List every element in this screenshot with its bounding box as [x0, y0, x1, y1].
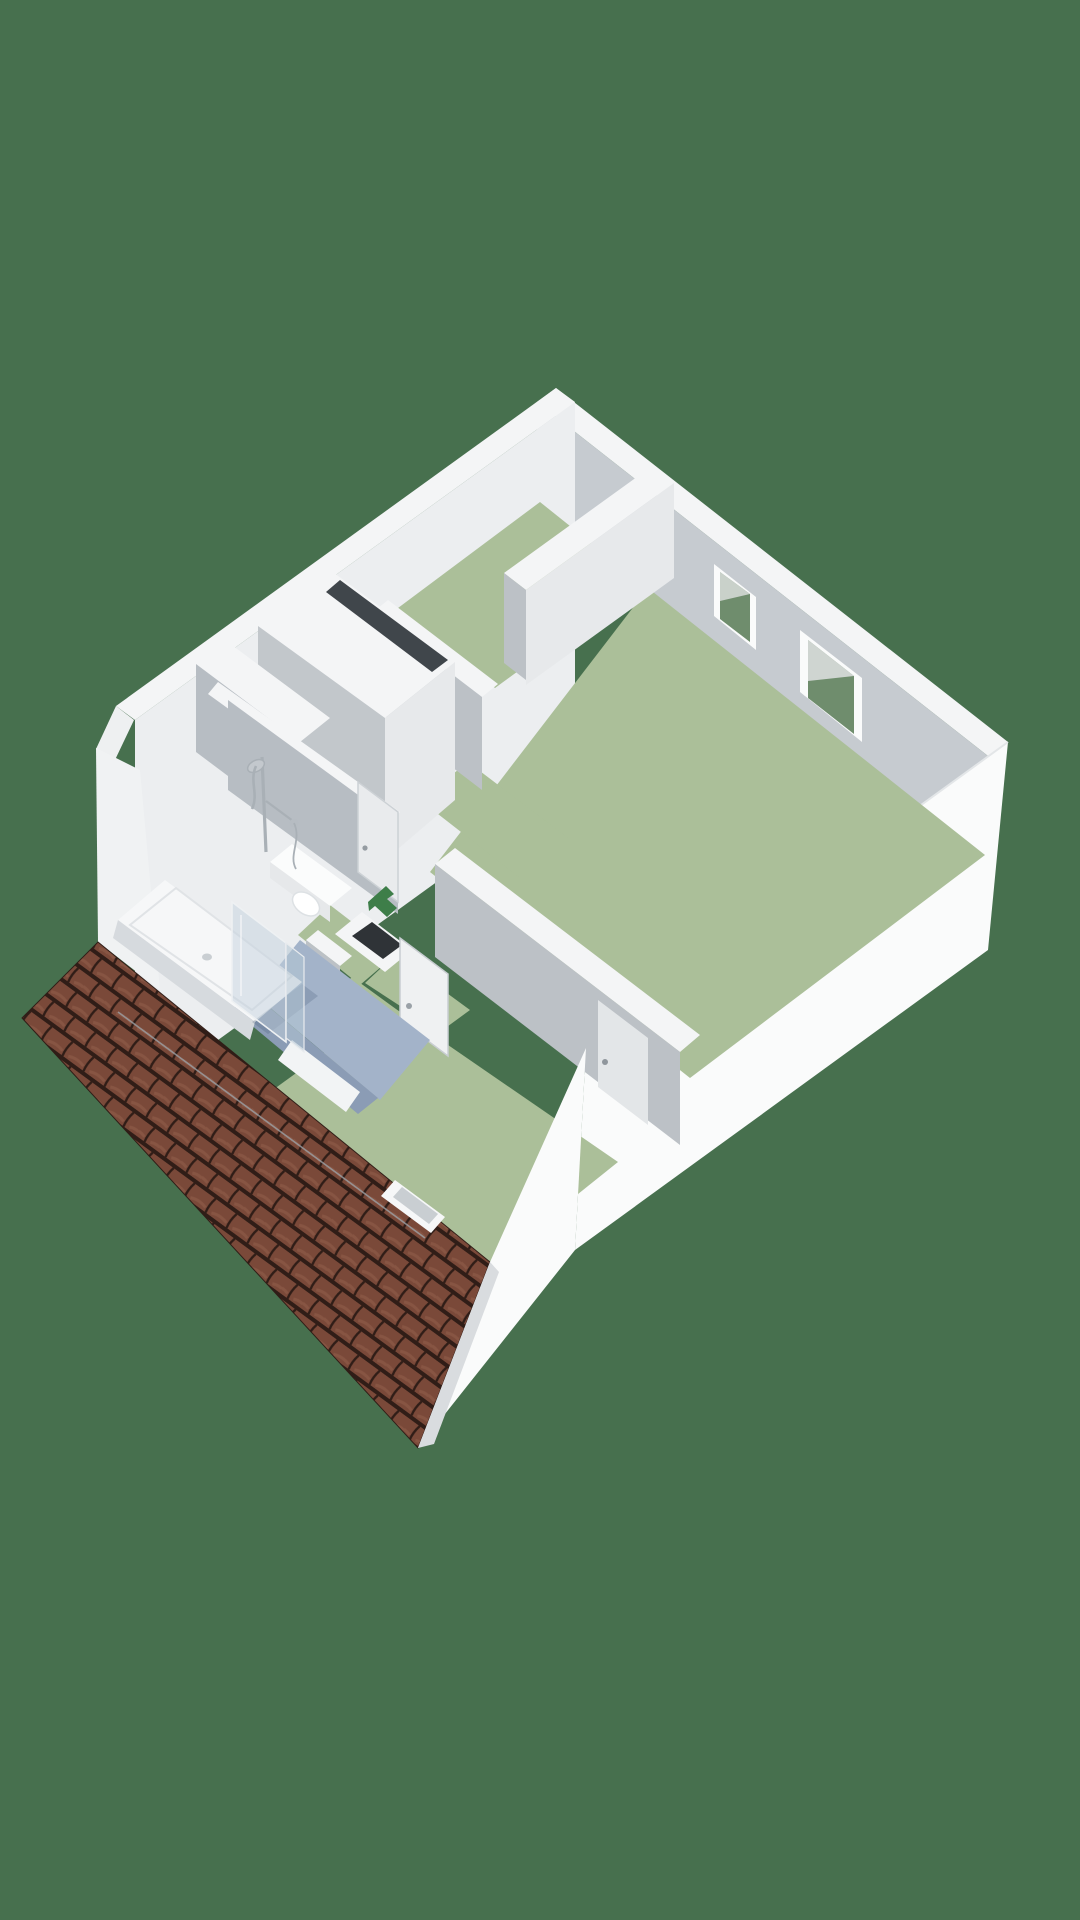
- bathtub-drain: [202, 954, 212, 961]
- floorplan-3d-render: [0, 0, 1080, 1920]
- shower-screen-return: [286, 943, 304, 1052]
- bathroom-door-handle[interactable]: [362, 845, 367, 850]
- bedroom-door-handle[interactable]: [602, 1059, 608, 1065]
- floorplan-3d-viewport[interactable]: [0, 0, 1080, 1920]
- divider-wall-end-face: [504, 573, 526, 680]
- hallway-door-handle[interactable]: [406, 1003, 412, 1009]
